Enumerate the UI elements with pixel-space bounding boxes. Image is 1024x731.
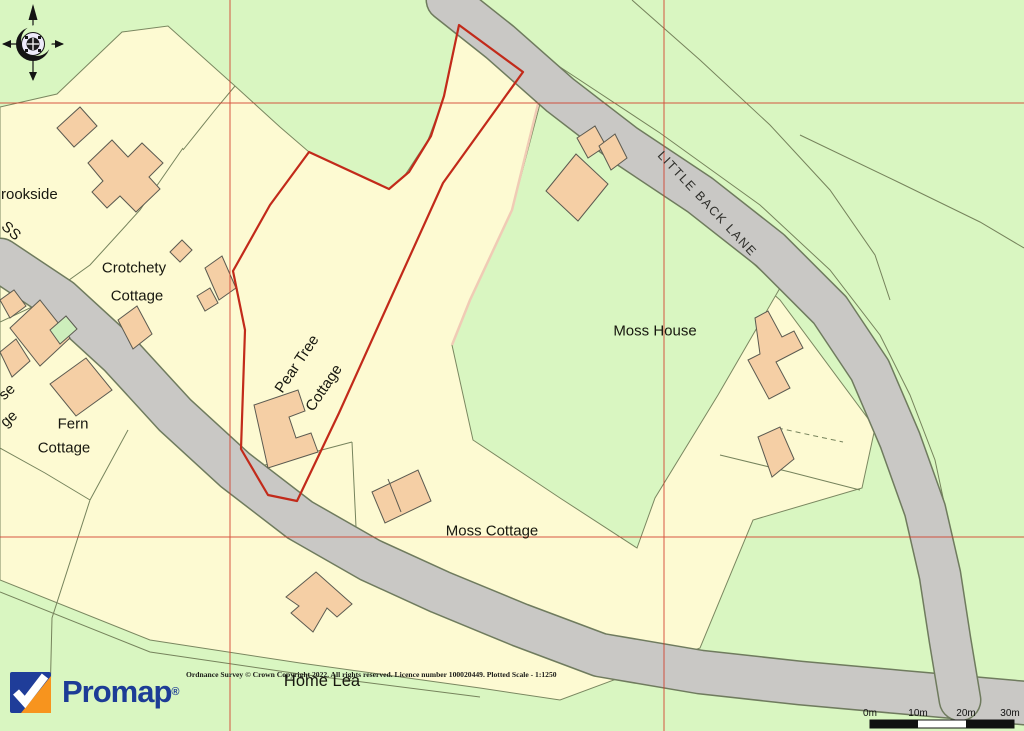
scale-label-0: 0m [863,708,877,719]
map-graphic: 0m 10m 20m 30m [0,0,1024,731]
promap-logo: Promap® [8,668,180,716]
label-fern-1: Fern [58,417,89,432]
registered-mark: ® [171,686,179,698]
label-crotchety-1: Crotchety [102,261,166,276]
label-home-lea: Home Lea [284,673,360,690]
scale-label-10: 10m [908,708,927,719]
label-brookside: rookside [1,187,58,202]
label-moss-cottage: Moss Cottage [446,524,539,539]
label-fern-2: Cottage [38,441,91,456]
promap-logo-icon [8,668,54,716]
promap-logo-text: Promap [62,674,171,710]
label-moss-house: Moss House [613,324,696,339]
map-canvas: 0m 10m 20m 30m Ordnance Survey © Crown C… [0,0,1024,731]
scale-label-20: 20m [956,708,975,719]
label-crotchety-2: Cottage [111,289,164,304]
copyright-text: Ordnance Survey © Crown Copyright 2022. … [186,670,606,679]
scale-label-30: 30m [1000,708,1019,719]
